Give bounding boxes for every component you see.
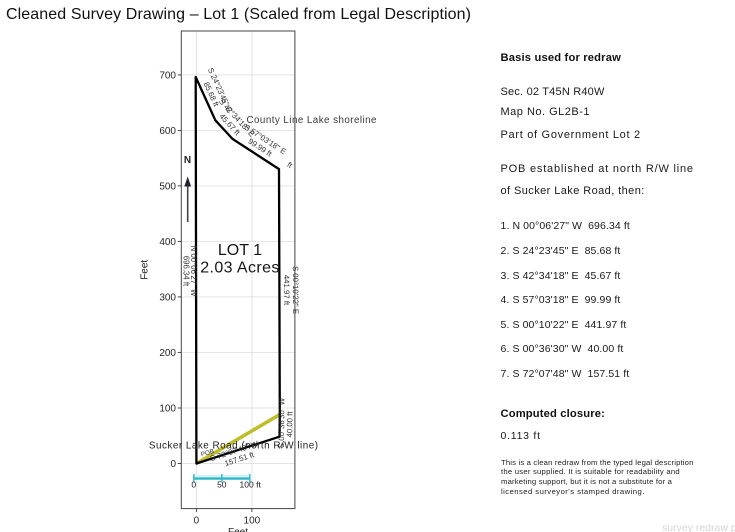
svg-text:696.34 ft: 696.34 ft bbox=[181, 256, 190, 287]
svg-text:ft: ft bbox=[285, 160, 294, 170]
svg-text:Feet: Feet bbox=[228, 527, 248, 532]
svg-text:300: 300 bbox=[159, 292, 176, 303]
svg-text:50: 50 bbox=[217, 479, 227, 489]
svg-text:N: N bbox=[184, 155, 191, 166]
svg-text:0: 0 bbox=[194, 516, 200, 527]
svg-text:LOT 1: LOT 1 bbox=[218, 242, 262, 259]
svg-text:2.03 Acres: 2.03 Acres bbox=[200, 259, 280, 276]
svg-text:700: 700 bbox=[159, 70, 176, 81]
svg-text:40.00 ft: 40.00 ft bbox=[285, 411, 294, 438]
svg-text:500: 500 bbox=[159, 181, 176, 192]
svg-text:200: 200 bbox=[159, 348, 176, 359]
svg-text:100: 100 bbox=[244, 516, 261, 527]
svg-text:Feet: Feet bbox=[140, 260, 151, 280]
svg-text:100 ft: 100 ft bbox=[240, 479, 262, 489]
svg-text:441.97 ft: 441.97 ft bbox=[282, 275, 291, 306]
svg-text:County Line Lake shoreline: County Line Lake shoreline bbox=[247, 115, 378, 126]
svg-text:0: 0 bbox=[170, 459, 176, 470]
svg-text:600: 600 bbox=[159, 126, 176, 137]
svg-text:100: 100 bbox=[159, 404, 176, 415]
svg-text:0: 0 bbox=[191, 479, 196, 489]
svg-text:400: 400 bbox=[159, 237, 176, 248]
svg-text:S 00°10'22" E: S 00°10'22" E bbox=[291, 266, 300, 314]
